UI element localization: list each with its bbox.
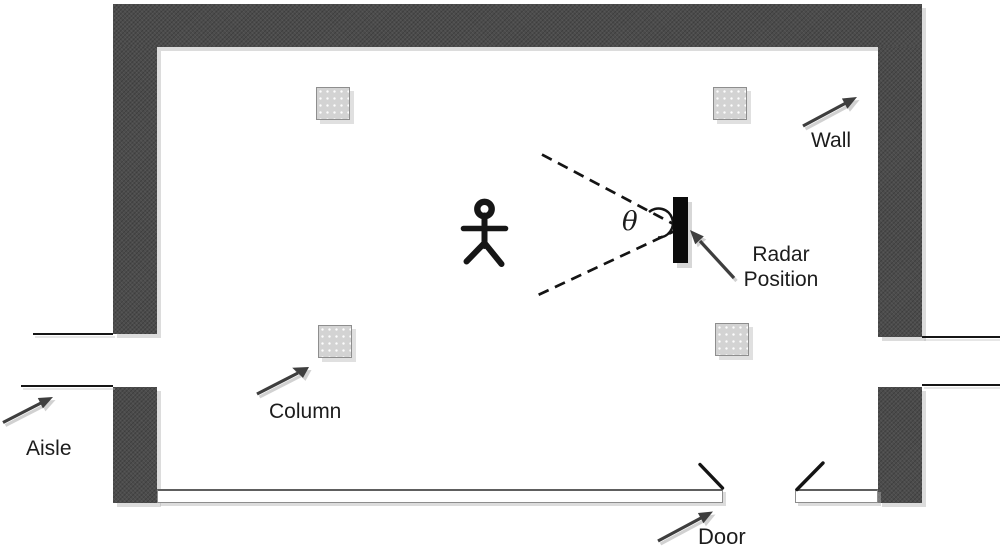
- column-arrow: [257, 367, 312, 397]
- wall-label: Wall: [811, 129, 851, 152]
- radar-marker-bar: [673, 197, 688, 263]
- door-label: Door: [698, 525, 746, 549]
- diagram-overlay: [0, 0, 1000, 549]
- radar-beam-lower-dash: [536, 229, 679, 296]
- wall-arrow: [803, 97, 860, 129]
- theta-label: θ: [622, 208, 638, 237]
- door-leaf-left: [700, 465, 723, 489]
- radar-marker: [673, 197, 692, 268]
- column-arrow-line: [257, 373, 298, 394]
- aisle-arrow: [3, 397, 56, 426]
- radar-position-label: Radar Position: [716, 242, 846, 292]
- column-label: Column: [269, 400, 341, 423]
- person-icon: [464, 202, 506, 264]
- radar-position-label-line1: Radar: [716, 242, 846, 267]
- door-leaf-right: [797, 463, 823, 490]
- door-arrow-line: [658, 518, 701, 541]
- person-leg-left: [467, 243, 485, 262]
- door-leaves: [700, 463, 823, 490]
- radar-beam-lines: [536, 154, 679, 296]
- floor-plan-canvas: Wall Radar Position Column Aisle Door θ: [0, 0, 1000, 549]
- radar-beam-upper-dash: [541, 154, 679, 227]
- aisle-label: Aisle: [26, 437, 72, 460]
- person-leg-right: [485, 243, 502, 264]
- aisle-arrow-line: [3, 403, 41, 423]
- radar-position-label-line2: Position: [716, 267, 846, 292]
- wall-arrow-line: [803, 104, 845, 127]
